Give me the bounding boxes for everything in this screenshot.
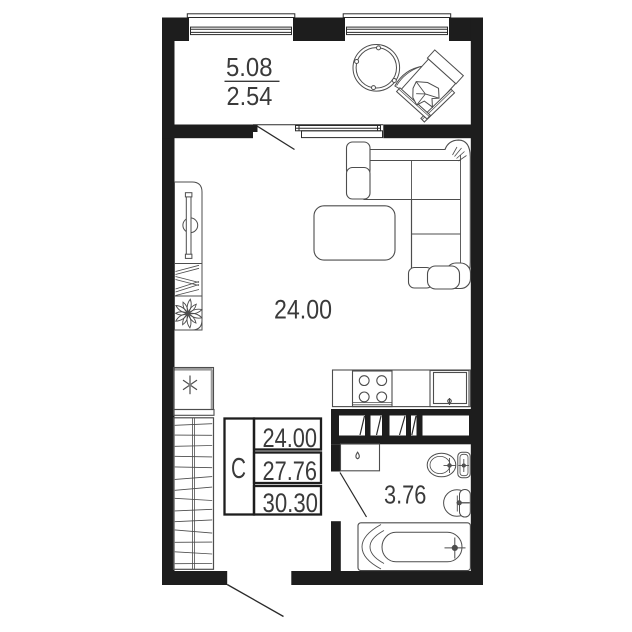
- svg-text:5.08: 5.08: [226, 52, 273, 82]
- svg-text:С: С: [231, 453, 246, 485]
- svg-text:24.00: 24.00: [274, 294, 332, 324]
- svg-text:24.00: 24.00: [263, 423, 318, 453]
- svg-text:2.54: 2.54: [227, 81, 273, 111]
- svg-text:30.30: 30.30: [263, 488, 319, 518]
- svg-text:3.76: 3.76: [384, 480, 426, 510]
- svg-text:27.76: 27.76: [263, 456, 318, 486]
